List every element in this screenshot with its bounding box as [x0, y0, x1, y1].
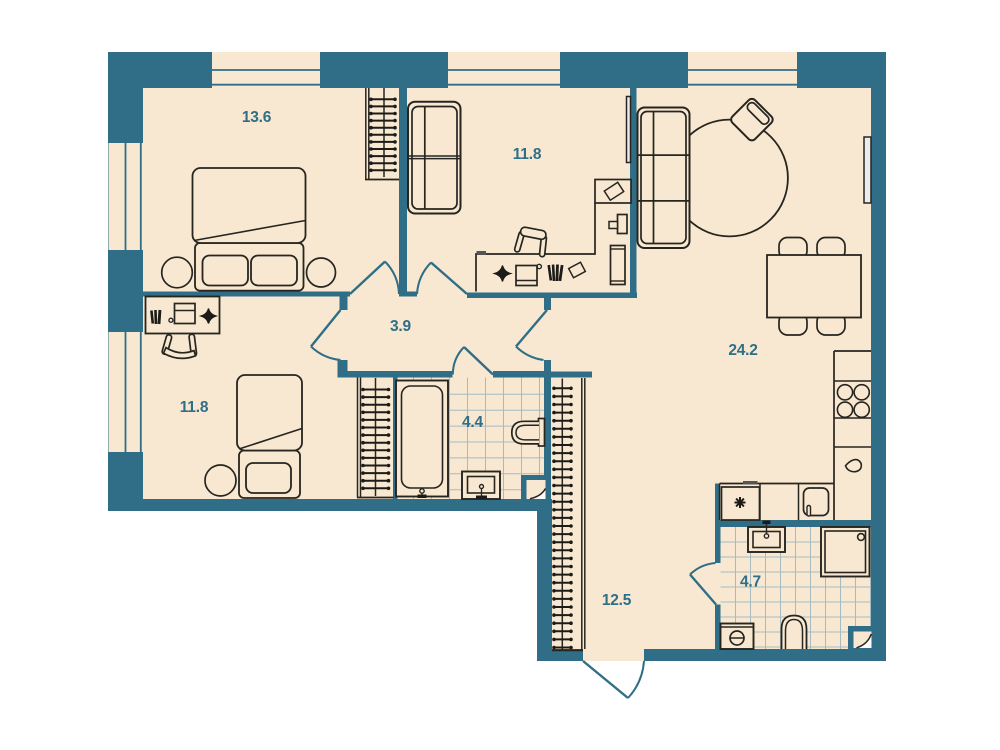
svg-text:11.8: 11.8	[513, 146, 542, 163]
svg-text:12.5: 12.5	[602, 592, 632, 609]
svg-text:13.6: 13.6	[242, 109, 272, 126]
svg-text:11.8: 11.8	[180, 399, 209, 416]
svg-text:4.7: 4.7	[740, 574, 761, 591]
svg-text:24.2: 24.2	[728, 342, 757, 359]
svg-text:4.4: 4.4	[462, 414, 484, 431]
svg-text:3.9: 3.9	[390, 318, 412, 335]
